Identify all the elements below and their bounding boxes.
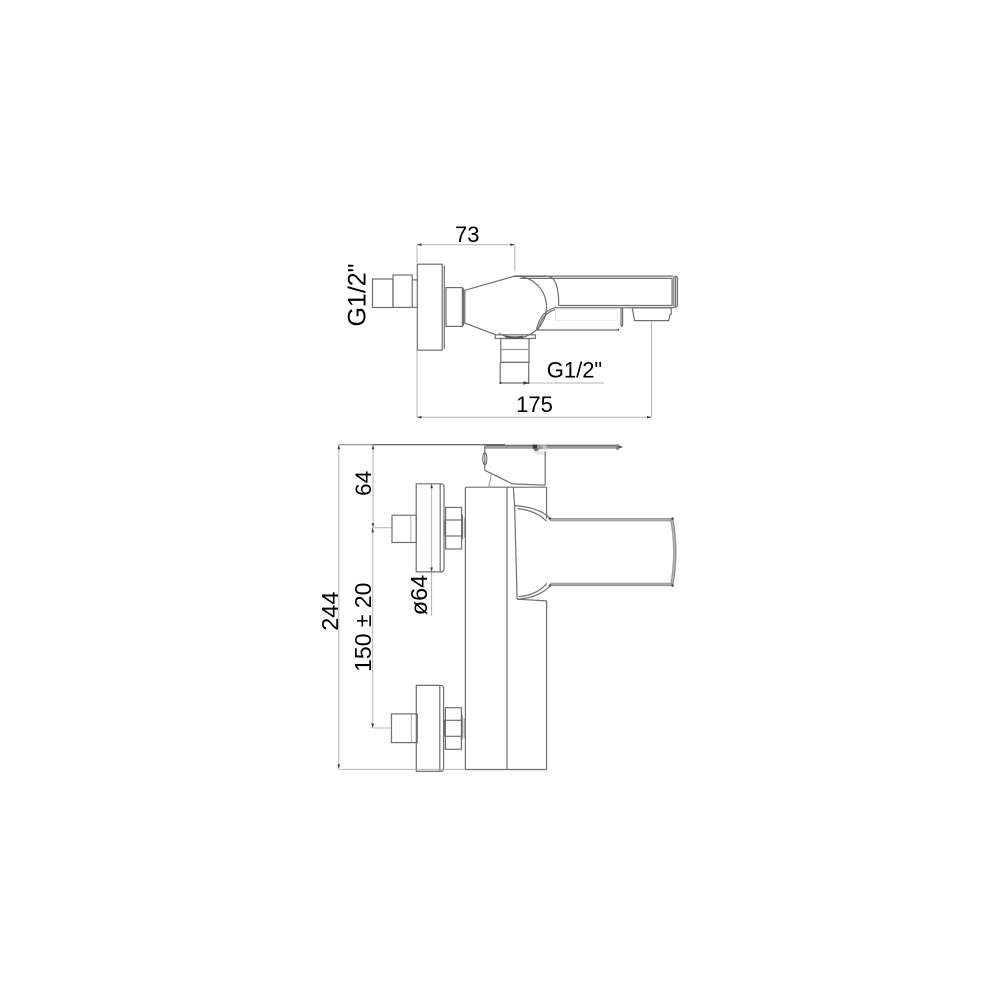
svg-text:244: 244 bbox=[317, 592, 343, 631]
svg-text:G1/2": G1/2" bbox=[547, 357, 603, 382]
svg-text:150 ± 20: 150 ± 20 bbox=[350, 583, 376, 672]
svg-text:73: 73 bbox=[455, 222, 479, 247]
svg-text:G1/2": G1/2" bbox=[344, 263, 372, 326]
svg-text:ø64: ø64 bbox=[406, 575, 432, 616]
svg-text:64: 64 bbox=[351, 471, 376, 496]
svg-text:175: 175 bbox=[516, 392, 553, 417]
